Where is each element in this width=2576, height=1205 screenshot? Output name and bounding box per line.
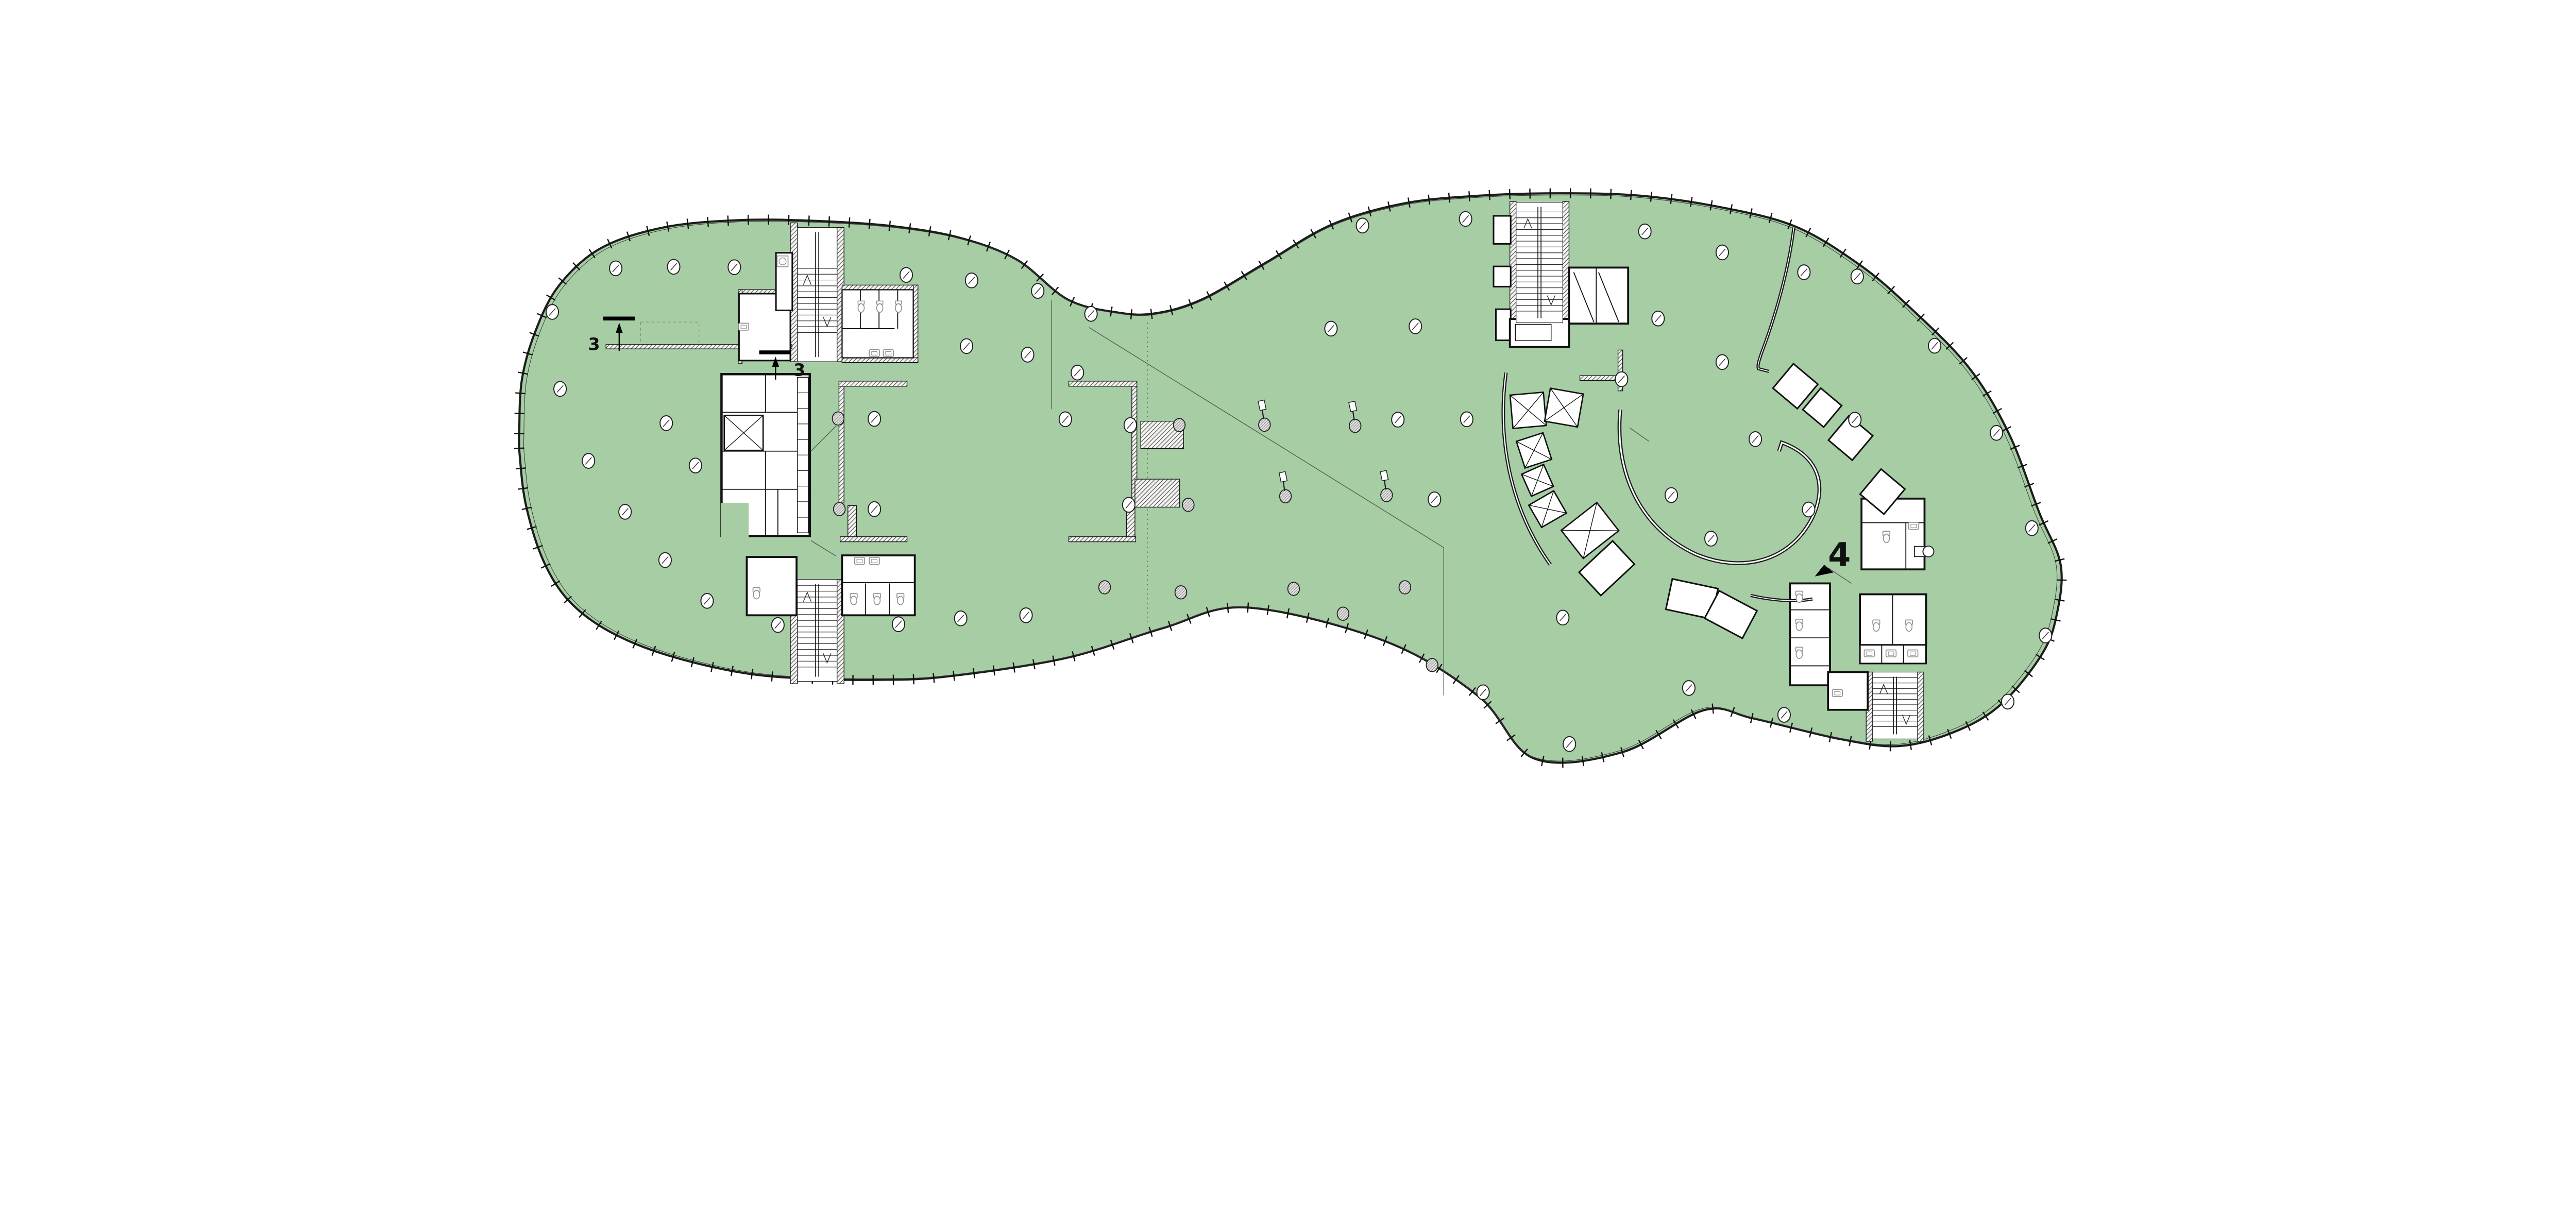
column	[660, 416, 672, 431]
wc-bowl	[1796, 594, 1802, 603]
column	[1683, 681, 1695, 695]
column	[965, 273, 978, 288]
stair	[798, 228, 837, 362]
sink-basin	[855, 557, 865, 565]
sink-basin	[869, 557, 879, 565]
column	[689, 458, 702, 473]
wc-fixture	[753, 588, 760, 599]
column-hatched	[1099, 581, 1111, 594]
capsule-end	[1923, 546, 1934, 557]
mullion-tick	[515, 393, 526, 394]
wc-bowl	[753, 590, 759, 599]
column	[1851, 269, 1863, 284]
column	[659, 553, 671, 568]
urinal-bowl	[877, 304, 883, 313]
room	[1494, 266, 1511, 286]
wall	[1135, 479, 1180, 507]
sink-fixture	[1886, 650, 1896, 657]
mullion-tick	[913, 674, 914, 685]
mullion-tick	[789, 215, 789, 225]
wc-fixture	[1905, 620, 1912, 631]
column-shape	[1288, 582, 1300, 596]
wc-fixture	[1873, 620, 1880, 631]
column-shape	[834, 502, 845, 516]
column	[1563, 737, 1575, 752]
mullion-tick	[1449, 193, 1450, 203]
column	[2002, 694, 2014, 709]
stair-shaft	[798, 228, 837, 362]
sink-basin	[739, 323, 749, 330]
wc-fixture	[850, 593, 857, 605]
sink-basin	[1833, 690, 1843, 697]
sink-fixture	[883, 350, 893, 357]
wall	[842, 358, 918, 363]
column	[1665, 488, 1677, 503]
column-shape	[1280, 489, 1292, 503]
column	[1928, 338, 1941, 353]
column	[1716, 355, 1728, 370]
column-shape	[1381, 488, 1393, 502]
column	[1716, 245, 1728, 260]
wc-bowl	[874, 596, 880, 605]
column	[1031, 283, 1044, 298]
column	[868, 412, 880, 427]
sink-basin	[869, 350, 879, 357]
column	[609, 261, 622, 276]
mullion-tick	[1489, 190, 1490, 200]
wc-bowl	[1873, 623, 1879, 632]
column	[772, 618, 784, 633]
wc-fixture	[1796, 591, 1803, 603]
wall	[842, 285, 918, 290]
sink-fixture	[869, 557, 879, 565]
column-hatched	[1174, 418, 1185, 432]
section-cut-bar	[603, 317, 635, 321]
wall	[840, 537, 907, 542]
stair	[1872, 672, 1918, 739]
section-label: 3	[793, 360, 805, 380]
mullion-tick	[849, 217, 850, 228]
column-hatched	[834, 502, 845, 516]
column	[900, 267, 912, 282]
column-shape	[1174, 418, 1185, 432]
urinal-bowl	[858, 304, 864, 313]
stair-shaft	[798, 580, 837, 682]
urinal-fixture	[858, 301, 864, 312]
wall	[1918, 672, 1924, 741]
elevator-shaft	[724, 415, 763, 450]
stair	[798, 580, 837, 682]
column	[1615, 372, 1628, 387]
column	[960, 339, 973, 354]
column	[1325, 321, 1337, 336]
column	[701, 593, 713, 608]
mullion-tick	[707, 217, 708, 227]
column	[1990, 426, 2003, 440]
sink-fixture	[855, 557, 865, 565]
wc-fixture	[874, 593, 881, 605]
wall	[848, 505, 857, 541]
column	[955, 611, 967, 626]
sink-basin	[883, 350, 893, 357]
column-hatched	[1175, 586, 1187, 599]
wc-fixture	[1796, 647, 1803, 658]
column-shape	[1337, 607, 1349, 620]
column	[546, 304, 558, 319]
room	[747, 557, 796, 615]
column	[1123, 498, 1135, 513]
column	[1428, 492, 1440, 507]
mullion-tick	[1510, 189, 1510, 199]
column	[1085, 307, 1097, 321]
column-shape	[1099, 581, 1111, 594]
mullion-tick	[2057, 580, 2067, 581]
column	[1071, 365, 1083, 380]
column-shape	[1426, 658, 1438, 672]
column	[1849, 412, 1861, 427]
sink-fixture	[739, 323, 749, 330]
column	[2026, 521, 2038, 536]
urinal-fixture	[877, 301, 883, 312]
column	[1639, 224, 1651, 239]
floorplan-page: 334	[0, 0, 2576, 910]
stair	[1516, 202, 1563, 323]
elevator-shaft	[1545, 388, 1583, 427]
stair-shaft	[1516, 202, 1563, 323]
column	[619, 504, 631, 519]
column	[1556, 610, 1569, 625]
column	[892, 617, 905, 632]
stair-shaft	[1872, 672, 1918, 739]
mullion-tick	[869, 219, 870, 229]
wall	[839, 381, 907, 386]
column	[1021, 347, 1033, 362]
room	[1496, 309, 1511, 340]
column-shape	[1349, 419, 1361, 433]
column-hatched	[833, 412, 844, 425]
mullion-tick	[728, 215, 728, 226]
urinal-bowl	[895, 304, 902, 313]
mullion-tick	[514, 448, 524, 449]
column	[1461, 412, 1473, 427]
mullion-tick	[516, 468, 526, 469]
column	[554, 382, 566, 397]
mullion-tick	[1248, 603, 1248, 613]
column	[582, 453, 595, 468]
mullion-tick	[1611, 189, 1611, 199]
wc-bowl	[1796, 622, 1802, 631]
mullion-tick	[829, 216, 829, 227]
wc-fixture	[897, 593, 904, 605]
column	[1798, 265, 1810, 280]
column-hatched	[1426, 658, 1438, 672]
floor-plan-svg: 334	[0, 0, 2576, 910]
column	[728, 260, 740, 275]
sink-fixture	[869, 350, 879, 357]
column-shape	[1259, 418, 1270, 432]
column	[868, 502, 880, 517]
sink-fixture	[1864, 650, 1874, 657]
mullion-tick	[1631, 190, 1631, 200]
room	[1494, 216, 1511, 244]
column	[2039, 628, 2052, 643]
column	[1356, 218, 1368, 233]
wall	[913, 285, 918, 363]
capsule-column	[1914, 546, 1934, 557]
column	[1460, 212, 1472, 227]
mullion-tick	[1469, 191, 1469, 201]
column	[1392, 412, 1404, 427]
wall	[1069, 381, 1137, 386]
wc-bowl	[1906, 623, 1912, 632]
room	[842, 290, 913, 358]
column	[1705, 531, 1717, 546]
column-shape	[1182, 498, 1194, 512]
sink-basin	[1908, 650, 1918, 657]
wc-bowl	[1883, 534, 1889, 543]
room	[1515, 325, 1551, 341]
column	[1778, 707, 1790, 722]
column-hatched	[1288, 582, 1300, 596]
mullion-tick	[1131, 309, 1132, 319]
column-hatched	[1399, 581, 1411, 594]
wall	[1069, 537, 1136, 542]
csink-fixture	[777, 256, 788, 267]
sink-basin	[1886, 650, 1896, 657]
sink-basin	[1864, 650, 1874, 657]
urinal-fixture	[895, 301, 902, 312]
column	[1477, 685, 1489, 700]
room	[1861, 499, 1924, 569]
sink-fixture	[1833, 690, 1843, 697]
room	[1569, 267, 1628, 324]
column-hatched	[1337, 607, 1349, 620]
column-shape	[1175, 586, 1187, 599]
column	[1020, 608, 1032, 623]
service-shaft	[798, 377, 808, 533]
wc-fixture	[1883, 531, 1890, 542]
column	[667, 260, 680, 275]
sink-fixture	[1908, 650, 1918, 657]
mullion-tick	[809, 215, 809, 226]
column	[1652, 311, 1664, 326]
wall	[1580, 376, 1621, 380]
elevator-shaft	[1510, 392, 1546, 428]
section-cut-bar	[759, 350, 790, 354]
sink-fixture	[1909, 522, 1919, 530]
column	[1409, 319, 1421, 334]
floor-patch	[721, 503, 749, 537]
section-label: 3	[588, 334, 600, 354]
section-label: 4	[1828, 535, 1851, 573]
column	[1059, 412, 1072, 427]
column-hatched	[1182, 498, 1194, 512]
wc-bowl	[1796, 650, 1802, 659]
sink-basin	[1909, 522, 1919, 530]
column-shape	[1399, 581, 1411, 594]
column-shape	[833, 412, 844, 425]
column	[1749, 432, 1761, 447]
column	[1802, 502, 1815, 517]
column	[1124, 418, 1137, 433]
wc-bowl	[897, 596, 904, 605]
wc-bowl	[851, 596, 857, 605]
wc-fixture	[1796, 619, 1803, 631]
wall	[839, 386, 844, 503]
